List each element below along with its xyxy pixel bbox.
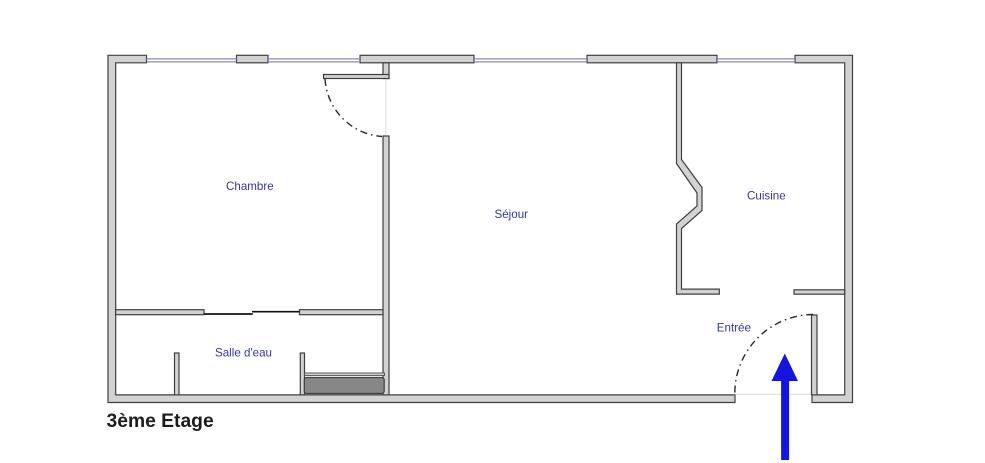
- svg-text:Chambre: Chambre: [226, 180, 274, 193]
- svg-text:Cuisine: Cuisine: [747, 190, 786, 203]
- svg-text:3ème Etage: 3ème Etage: [107, 411, 214, 432]
- svg-text:Entrée: Entrée: [717, 322, 751, 335]
- svg-text:Séjour: Séjour: [495, 208, 529, 221]
- svg-text:Salle d'eau: Salle d'eau: [215, 347, 272, 360]
